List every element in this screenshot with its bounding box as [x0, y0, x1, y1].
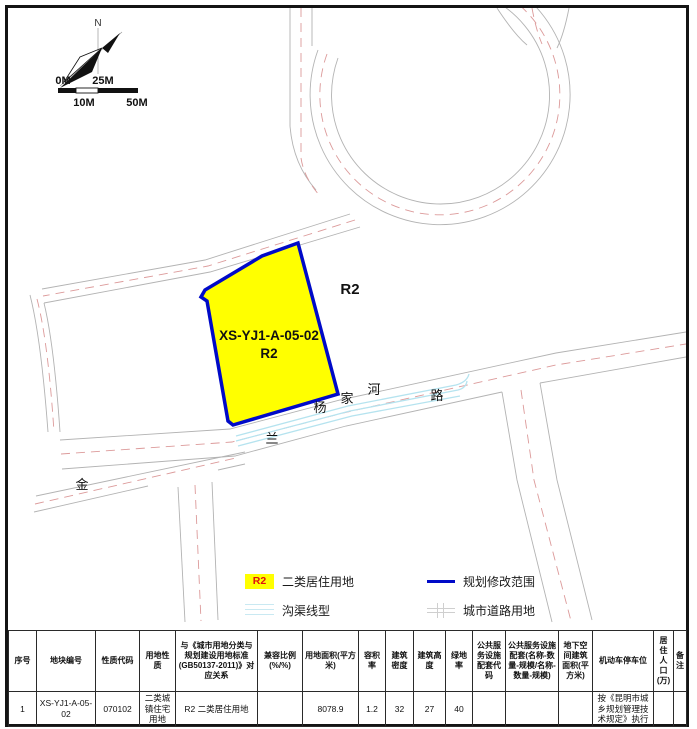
parcel-zone-label: R2 [260, 346, 277, 361]
table-header-cell: 用地面积(平方米) [303, 631, 359, 692]
table-header-cell: 建筑高度 [414, 631, 446, 692]
road-swatch-icon [427, 603, 455, 618]
parcel-data-table: 序号 地块编号 性质代码 用地性质 与《城市用地分类与规划建设用地标准(GB50… [8, 630, 687, 727]
adjacent-zone-label: R2 [340, 281, 359, 298]
table-header-cell: 与《城市用地分类与规划建设用地标准(GB50137-2011)》对应关系 [176, 631, 258, 692]
road-char: 河 [367, 382, 380, 397]
plan-map: XS-YJ1-A-05-02 R2 R2 杨 家 河 路 金 兰 N [8, 8, 686, 630]
table-cell [258, 692, 303, 727]
legend-label: 沟渠线型 [282, 602, 330, 619]
table-cell [559, 692, 593, 727]
table-header-cell: 居 住 人 口 (万) [654, 631, 674, 692]
table-header-cell: 公共服务设施配套(名称-数量-规模/名称-数量-规模) [506, 631, 559, 692]
table-cell [674, 692, 687, 727]
ditch-swatch-icon [245, 604, 274, 617]
plan-sheet-frame: XS-YJ1-A-05-02 R2 R2 杨 家 河 路 金 兰 N [5, 5, 689, 727]
road-name-jinlan: 金 兰 [75, 431, 278, 492]
parcel-code-label: XS-YJ1-A-05-02 [219, 328, 319, 343]
legend-item-ditch: 沟渠线型 [245, 602, 330, 618]
table-header-cell: 性质代码 [96, 631, 140, 692]
road-char: 路 [430, 388, 443, 403]
table-cell: 8078.9 [303, 692, 359, 727]
table-cell: R2 二类居住用地 [176, 692, 258, 727]
table-cell: 40 [446, 692, 473, 727]
table-cell: XS-YJ1-A-05-02 [37, 692, 96, 727]
table-cell [654, 692, 674, 727]
legend-item-urban-road: 城市道路用地 [427, 602, 535, 618]
road-char: 杨 [313, 400, 326, 415]
legend-label: 二类居住用地 [282, 573, 354, 590]
table-cell [506, 692, 559, 727]
table-cell: 070102 [96, 692, 140, 727]
scale-label: 10M [73, 97, 94, 109]
residential-swatch-icon: R2 [245, 574, 274, 589]
table-header-cell: 公共服务设施配套代码 [473, 631, 506, 692]
legend-item-modify-scope: 规划修改范围 [427, 573, 535, 589]
table-cell [473, 692, 506, 727]
legend-label: 规划修改范围 [463, 573, 535, 590]
table-header-cell: 地下空间建筑面积(平方米) [559, 631, 593, 692]
table-cell: 按《昆明市城乡规划管理技术规定》执行 [593, 692, 654, 727]
table-header-cell: 兼容比例(%/%) [258, 631, 303, 692]
table-cell: 1.2 [359, 692, 386, 727]
table-cell: 1 [9, 692, 37, 727]
legend-label: 城市道路用地 [463, 602, 535, 619]
plan-map-canvas: XS-YJ1-A-05-02 R2 R2 杨 家 河 路 金 兰 N [8, 8, 686, 630]
scale-bar: 0M 25M 10M 50M [55, 75, 147, 109]
table-cell: 27 [414, 692, 446, 727]
legend-item-residential: R2 二类居住用地 [245, 573, 354, 589]
table-header-cell: 绿地率 [446, 631, 473, 692]
table-header-row: 序号 地块编号 性质代码 用地性质 与《城市用地分类与规划建设用地标准(GB50… [9, 631, 687, 692]
road-char: 家 [340, 391, 353, 406]
boundary-line-swatch-icon [427, 580, 455, 583]
scale-label: 0M [55, 75, 70, 87]
table-header-cell: 建筑密度 [386, 631, 414, 692]
compass-north-label: N [94, 18, 101, 29]
scale-label: 50M [126, 97, 147, 109]
scale-label: 25M [92, 75, 113, 87]
table-cell: 32 [386, 692, 414, 727]
table-header-cell: 备注 [674, 631, 687, 692]
table-header-cell: 容积率 [359, 631, 386, 692]
table-header-cell: 地块编号 [37, 631, 96, 692]
table-header-cell: 序号 [9, 631, 37, 692]
road-char: 兰 [265, 431, 278, 446]
table-row: 1 XS-YJ1-A-05-02 070102 二类城镇住宅用地 R2 二类居住… [9, 692, 687, 727]
table-header-cell: 机动车停车位 [593, 631, 654, 692]
road-char: 金 [75, 477, 88, 492]
table-cell: 二类城镇住宅用地 [140, 692, 176, 727]
table-header-cell: 用地性质 [140, 631, 176, 692]
